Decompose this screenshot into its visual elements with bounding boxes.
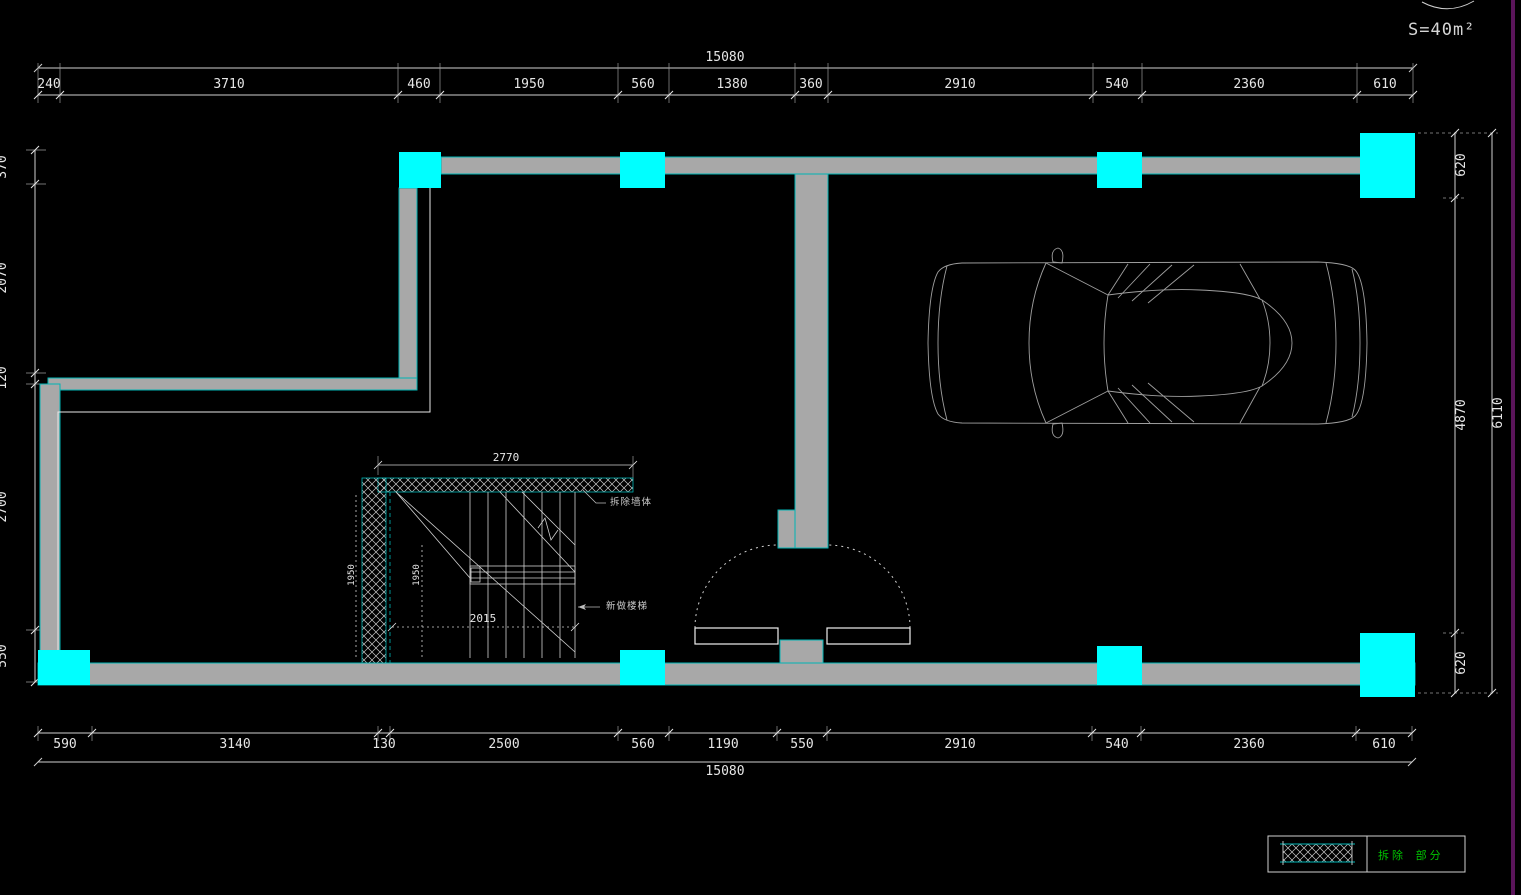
column [1360,633,1415,697]
dim-label-top-5: 1380 [716,78,747,92]
sheet-marks [1422,0,1515,895]
dim-label-left-4: 550 [0,632,10,680]
stair-depth-dim-b: 1950 [410,557,424,593]
stair-run-dim: 2015 [470,612,497,626]
column [620,650,665,685]
dim-label-left-3: 2700 [0,483,10,531]
dim-label-bottom-8: 540 [1105,738,1128,752]
stair-assembly [356,456,637,663]
dim-label-bottom-0: 590 [53,738,76,752]
dim-right-total: 6110 [1492,389,1506,437]
dim-label-top-6: 360 [799,78,822,92]
column [399,152,441,188]
plan-drawing [0,0,1521,895]
dim-bottom-total: 15080 [705,765,744,779]
dim-label-right-1: 4870 [1455,391,1469,439]
door-leaf [695,628,778,644]
dim-label-bottom-7: 2910 [944,738,975,752]
dim-label-bottom-6: 550 [790,738,813,752]
column [38,650,90,685]
dim-label-right-2: 620 [1455,639,1469,687]
dim-label-bottom-4: 560 [631,738,654,752]
dim-label-top-1: 3710 [213,78,244,92]
column [1097,646,1142,685]
dim-label-top-0: 240 [37,78,60,92]
dim-label-top-9: 2360 [1233,78,1264,92]
column [620,152,665,188]
dim-top-total: 15080 [705,51,744,65]
dim-label-top-2: 460 [407,78,430,92]
stair-depth-dim-a: 1950 [345,557,359,593]
dim-label-bottom-9: 2360 [1233,738,1264,752]
double-door [695,545,910,644]
legend-hatch-swatch [1283,844,1352,862]
walls [38,157,1415,685]
dim-label-top-4: 560 [631,78,654,92]
label-new-stair: 新做楼梯 [606,601,648,612]
stair-width-dim: 2770 [493,451,520,465]
column [1097,152,1142,188]
columns [38,133,1415,697]
viewport-edge-line [1511,0,1515,895]
dim-label-top-3: 1950 [513,78,544,92]
dim-label-top-10: 610 [1373,78,1396,92]
dim-label-right-0: 620 [1455,141,1469,189]
dim-label-bottom-10: 610 [1372,738,1395,752]
cad-floor-plan-canvas: 15080 15080 6110 S=40m² 2770 2015 1950 1… [0,0,1521,895]
dim-label-bottom-2: 130 [372,738,395,752]
door-leaf [827,628,910,644]
dim-label-bottom-1: 3140 [219,738,250,752]
dim-label-left-2: 120 [0,354,10,402]
legend-hatch-label: 拆除 部分 [1378,847,1444,863]
dim-label-top-7: 2910 [944,78,975,92]
car-plan-view [928,248,1367,438]
column [1360,133,1415,198]
dim-label-bottom-5: 1190 [707,738,738,752]
label-demolish-wall: 拆除墙体 [610,497,652,508]
area-label: S=40m² [1408,20,1475,40]
dim-label-top-8: 540 [1105,78,1128,92]
dim-label-left-0: 370 [0,143,10,191]
dim-label-left-1: 2070 [0,254,10,302]
dim-label-bottom-3: 2500 [488,738,519,752]
